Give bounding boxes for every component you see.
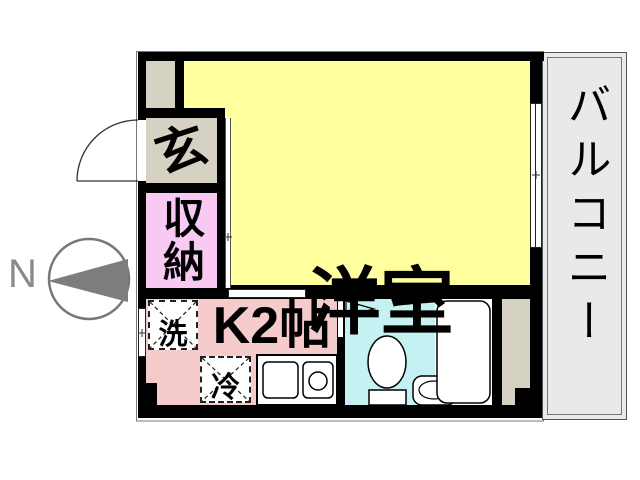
wall xyxy=(138,108,222,118)
wall xyxy=(138,183,225,193)
fridge-label: 冷 xyxy=(200,364,251,406)
wall xyxy=(138,52,544,61)
window-icon xyxy=(138,308,146,357)
balcony-label: バルコニー xyxy=(542,82,627,417)
living-room-label: 洋室 6帖 xyxy=(231,88,530,480)
entrance-upper-strip xyxy=(146,61,175,108)
floor-plan: 洋室 6帖 バルコニー 玄 収納 K2帖 洗 冷 N xyxy=(0,0,640,480)
storage-label: 収納 xyxy=(158,196,204,288)
north-label: N xyxy=(8,252,37,297)
balcony-name: バルコニー xyxy=(553,82,617,417)
sliding-window-icon xyxy=(530,103,542,248)
wall xyxy=(530,52,542,103)
washer-label: 洗 xyxy=(148,311,198,353)
wall xyxy=(217,108,225,299)
storage-name: 収納 xyxy=(151,196,212,288)
wall xyxy=(138,288,218,299)
kitchen-label: K2帖 xyxy=(207,298,337,354)
window-center-line xyxy=(535,104,536,247)
